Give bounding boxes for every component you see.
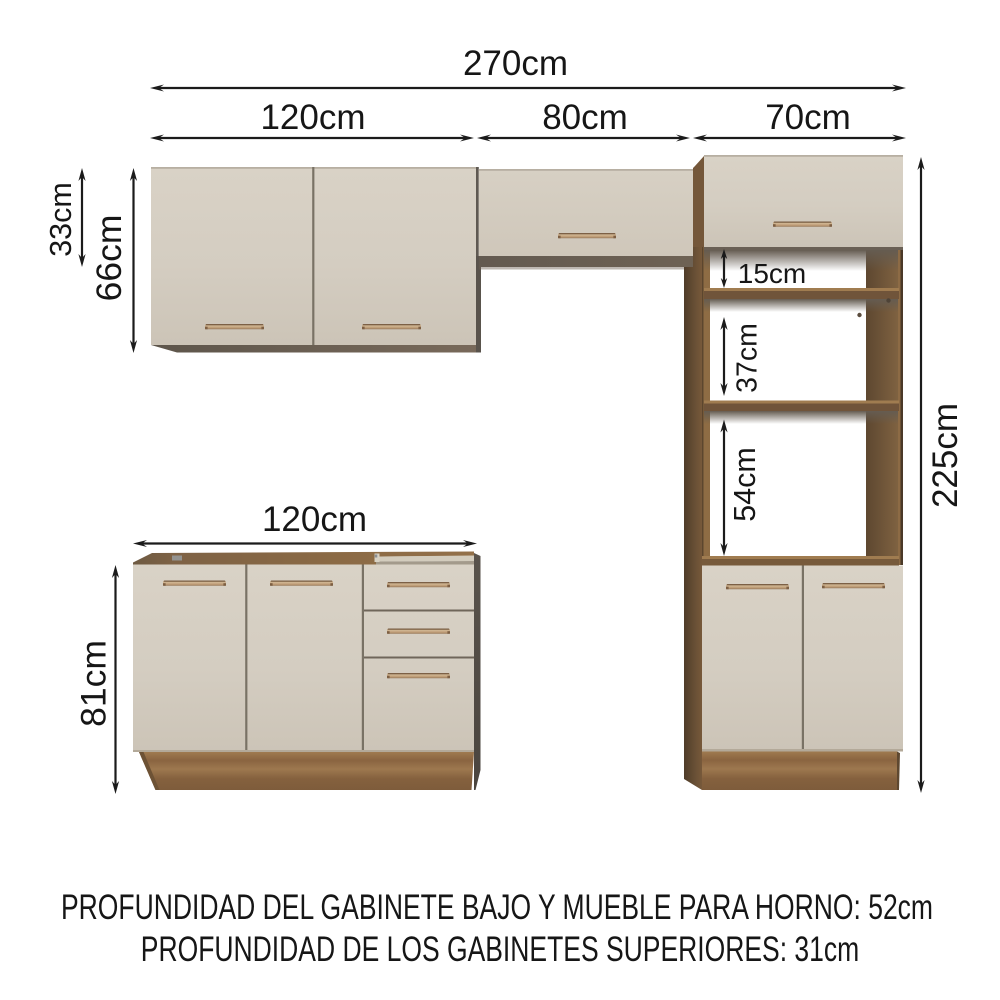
svg-text:80cm: 80cm (542, 98, 628, 137)
svg-text:PROFUNDIDAD DE LOS GABINETES S: PROFUNDIDAD DE LOS GABINETES SUPERIORES:… (141, 929, 859, 969)
svg-text:66cm: 66cm (89, 215, 129, 302)
svg-text:120cm: 120cm (260, 98, 365, 137)
svg-text:70cm: 70cm (765, 98, 851, 137)
svg-text:120cm: 120cm (262, 500, 367, 539)
svg-text:270cm: 270cm (463, 44, 568, 83)
svg-text:PROFUNDIDAD DEL GABINETE BAJO: PROFUNDIDAD DEL GABINETE BAJO Y MUEBLE P… (61, 887, 933, 927)
svg-text:54cm: 54cm (728, 447, 762, 522)
svg-text:225cm: 225cm (926, 403, 965, 508)
svg-text:15cm: 15cm (738, 258, 806, 289)
svg-text:37cm: 37cm (732, 323, 764, 393)
svg-text:81cm: 81cm (74, 640, 114, 727)
svg-text:33cm: 33cm (44, 182, 78, 257)
